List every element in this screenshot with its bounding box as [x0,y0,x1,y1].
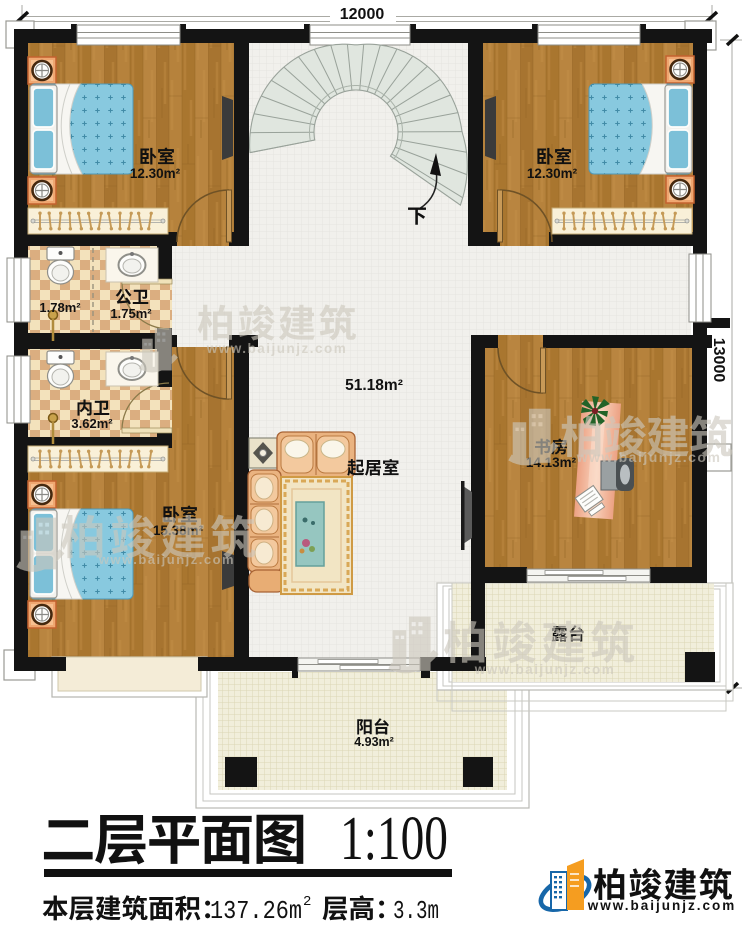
svg-text:137.26m: 137.26m [210,896,302,926]
svg-text:51.18m²: 51.18m² [345,377,403,394]
svg-text:3.62m²: 3.62m² [71,416,113,431]
svg-text:2: 2 [303,894,311,910]
svg-text:13000: 13000 [710,338,727,383]
svg-text:1.78m²: 1.78m² [39,300,81,315]
svg-text:3.3m: 3.3m [393,896,439,926]
svg-text:www.baijunjz.com: www.baijunjz.com [587,898,737,913]
svg-text:www.baijunjz.com: www.baijunjz.com [206,341,348,356]
svg-text:4.93m²: 4.93m² [354,735,394,749]
svg-text:12.30m²: 12.30m² [130,166,181,181]
svg-text:12.30m²: 12.30m² [527,166,578,181]
svg-text:www.baijunjz.com: www.baijunjz.com [474,662,616,677]
svg-text:1:100: 1:100 [340,805,448,873]
svg-text:www.baijunjz.com: www.baijunjz.com [98,552,235,567]
svg-text:www.baijunjz.com: www.baijunjz.com [576,449,722,465]
svg-text:12000: 12000 [340,6,385,23]
svg-text:1.75m²: 1.75m² [110,306,152,321]
